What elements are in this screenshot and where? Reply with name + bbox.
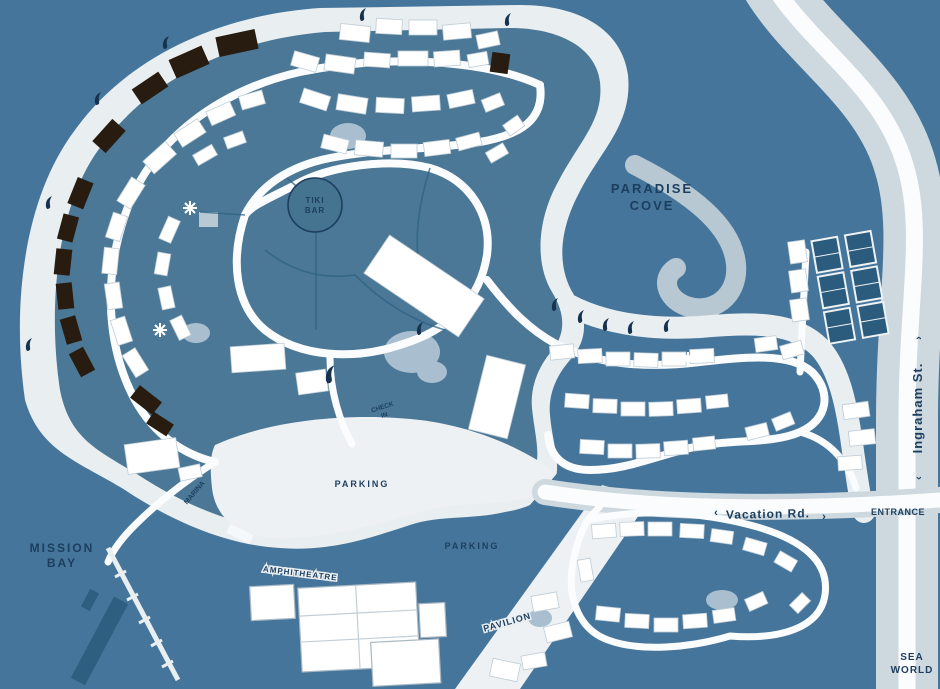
resort-map: TIKI BAR PARADISE COVE MISSION BAY Ingra… — [0, 0, 940, 689]
parking-south-label: PARKING — [445, 541, 500, 551]
mission-bay-label-line2: BAY — [47, 556, 77, 570]
sea-world-label-line2: WORLD — [891, 665, 934, 676]
parking-west-label: PARKING — [335, 479, 390, 489]
map-canvas: TIKI BAR PARADISE COVE MISSION BAY Ingra… — [0, 0, 940, 689]
sea-world-label-line1: SEA — [900, 652, 924, 663]
ingraham-st-label: Ingraham St. — [910, 363, 925, 454]
ingraham-arrow-up-icon: › — [913, 336, 925, 340]
vacation-rd-arrow-right-icon: › — [822, 511, 826, 523]
vacation-rd-arrow-left-icon: ‹ — [714, 507, 718, 519]
tiki-bar-label-line2: BAR — [305, 206, 325, 215]
paradise-cove-label-line2: COVE — [630, 198, 675, 213]
entrance-label: ENTRANCE — [871, 507, 925, 517]
vacation-rd-label: Vacation Rd. — [726, 506, 810, 521]
ingraham-arrow-down-icon: ‹ — [913, 476, 925, 480]
tiki-bar-marker: TIKI BAR — [288, 178, 342, 232]
mission-bay-label-line1: MISSION — [30, 541, 95, 555]
tiki-bar-label-line1: TIKI — [305, 196, 324, 205]
paradise-cove-label-line1: PARADISE — [611, 181, 693, 196]
